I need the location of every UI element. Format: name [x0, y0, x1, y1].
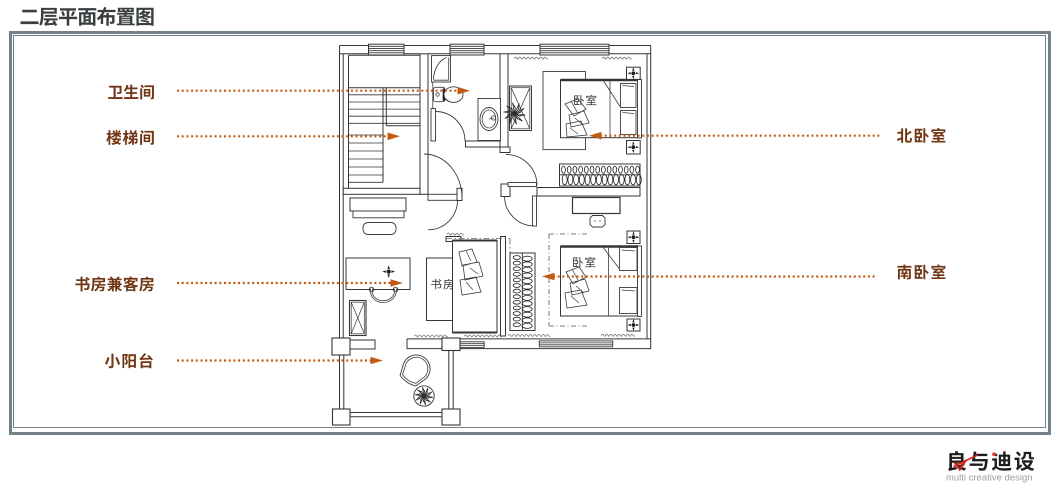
svg-text:multi creative design: multi creative design: [946, 472, 1033, 483]
